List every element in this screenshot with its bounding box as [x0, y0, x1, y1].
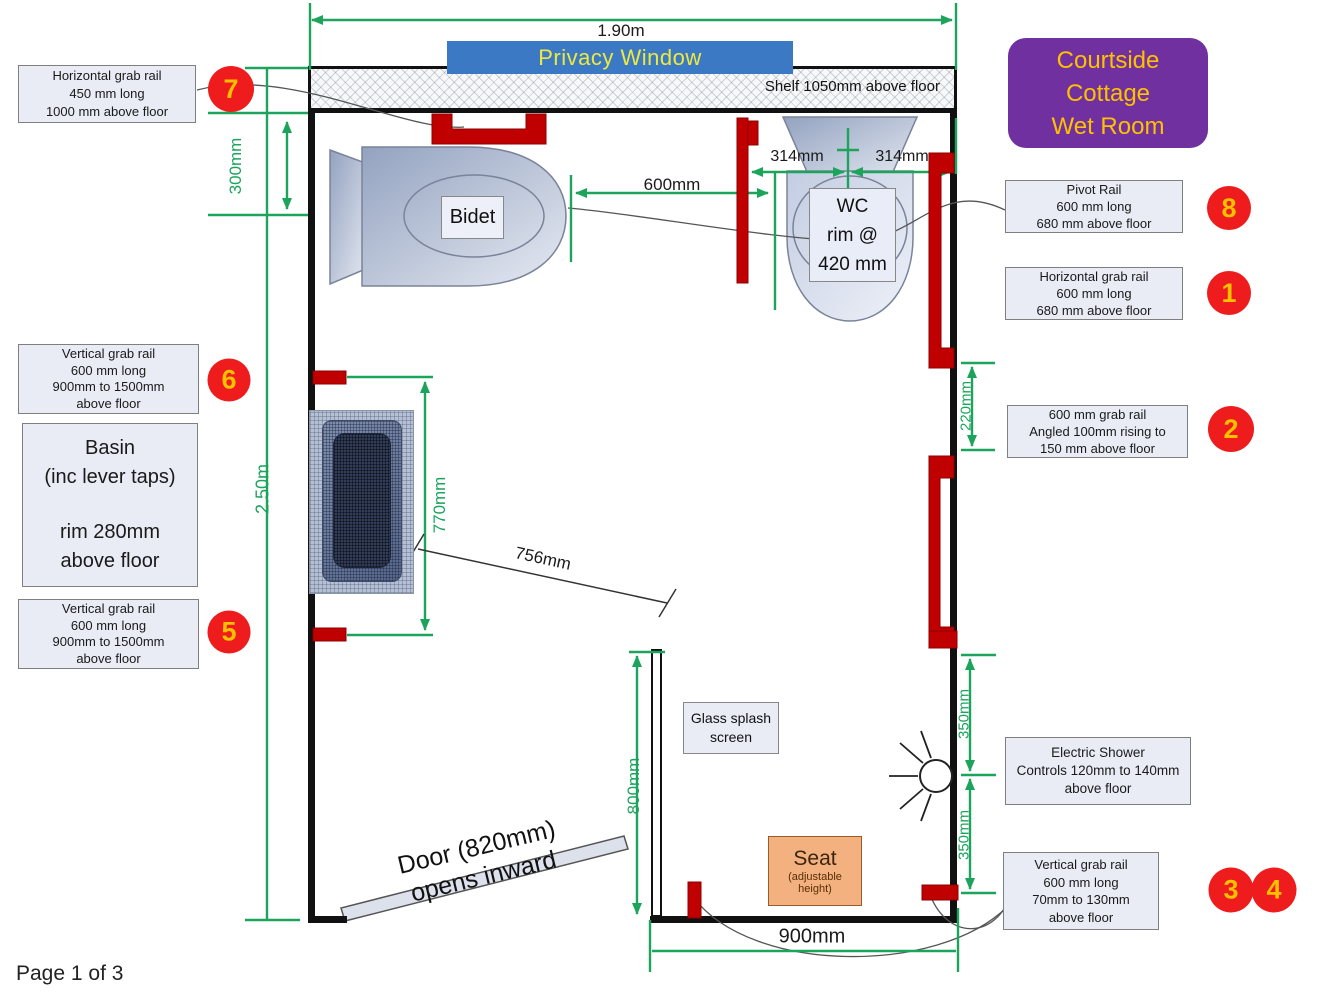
callout-grab-rail-6: Vertical grab rail 600 mm long 900mm to … [18, 344, 199, 414]
wet-room-plan: Privacy Window 1.90m Shelf 1050mm above … [0, 0, 1326, 1000]
glass-screen-label: Glass splash screen [683, 702, 779, 754]
grab-rail-7 [432, 114, 546, 144]
seat-label: Seat (adjustable height) [768, 836, 862, 906]
wc-label: WC rim @ 420 mm [809, 188, 896, 282]
shower-head-icon [889, 731, 952, 821]
badge-8: 8 [1207, 186, 1251, 230]
dim-220: 220mm [958, 381, 975, 431]
basin-rail-upper [313, 371, 346, 384]
callout-grab-rail-1: Horizontal grab rail 600 mm long 680 mm … [1005, 267, 1183, 320]
corner-rail-stub [922, 885, 958, 900]
badge-7: 7 [208, 66, 254, 112]
callout-basin-note: Basin (inc lever taps) rim 280mm above f… [22, 423, 198, 587]
callout-shower-controls: Electric Shower Controls 120mm to 140mm … [1005, 737, 1191, 805]
dim-770: 770mm [430, 477, 450, 534]
badge-6: 6 [208, 359, 251, 402]
privacy-window-label: Privacy Window [538, 45, 701, 71]
dim-300: 300mm [226, 138, 246, 195]
basin-fixture [309, 410, 414, 594]
badge-4: 4 [1252, 868, 1297, 913]
basin-rail-lower [313, 628, 346, 641]
glass-screen-line [652, 650, 661, 916]
diagonal-dimension-756 [407, 534, 676, 617]
callout-pivot-rail-8: Pivot Rail 600 mm long 680 mm above floo… [1005, 180, 1183, 233]
wc-drop-down-rail [737, 118, 748, 283]
dim-314-right: 314mm [875, 148, 928, 166]
callout-grab-rail-7: Horizontal grab rail 450 mm long 1000 mm… [18, 65, 196, 123]
badge-1: 1 [1207, 271, 1251, 315]
title-line-2: Cottage [1066, 77, 1150, 110]
dim-250: 2.50m [253, 464, 274, 514]
floor-plan-graphics [0, 0, 1326, 1000]
callout-grab-rail-3-4: Vertical grab rail 600 mm long 70mm to 1… [1003, 852, 1159, 930]
badge-2: 2 [1208, 406, 1254, 452]
dim-width-190: 1.90m [597, 21, 644, 41]
dim-600: 600mm [644, 175, 701, 195]
privacy-window-banner: Privacy Window [447, 41, 793, 74]
badge-5: 5 [208, 611, 251, 654]
screen-rail-stub [688, 882, 701, 918]
page-number: Page 1 of 3 [16, 962, 123, 986]
dim-350-lower: 350mm [956, 810, 973, 860]
callout-grab-rail-5: Vertical grab rail 600 mm long 900mm to … [18, 599, 199, 669]
title-line-1: Courtside [1057, 44, 1160, 77]
title-line-3: Wet Room [1052, 110, 1165, 143]
bidet-label: Bidet [441, 196, 504, 239]
dim-900: 900mm [779, 926, 846, 949]
title-card: Courtside Cottage Wet Room [1008, 38, 1208, 148]
dim-314-left: 314mm [770, 148, 823, 166]
shelf-label: Shelf 1050mm above floor [690, 78, 940, 95]
shower-rail-stub [929, 631, 957, 648]
dim-800: 800mm [624, 758, 644, 815]
callout-grab-rail-2: 600 mm grab rail Angled 100mm rising to … [1007, 405, 1188, 458]
badge-3: 3 [1209, 868, 1254, 913]
dim-350-upper: 350mm [956, 689, 973, 739]
